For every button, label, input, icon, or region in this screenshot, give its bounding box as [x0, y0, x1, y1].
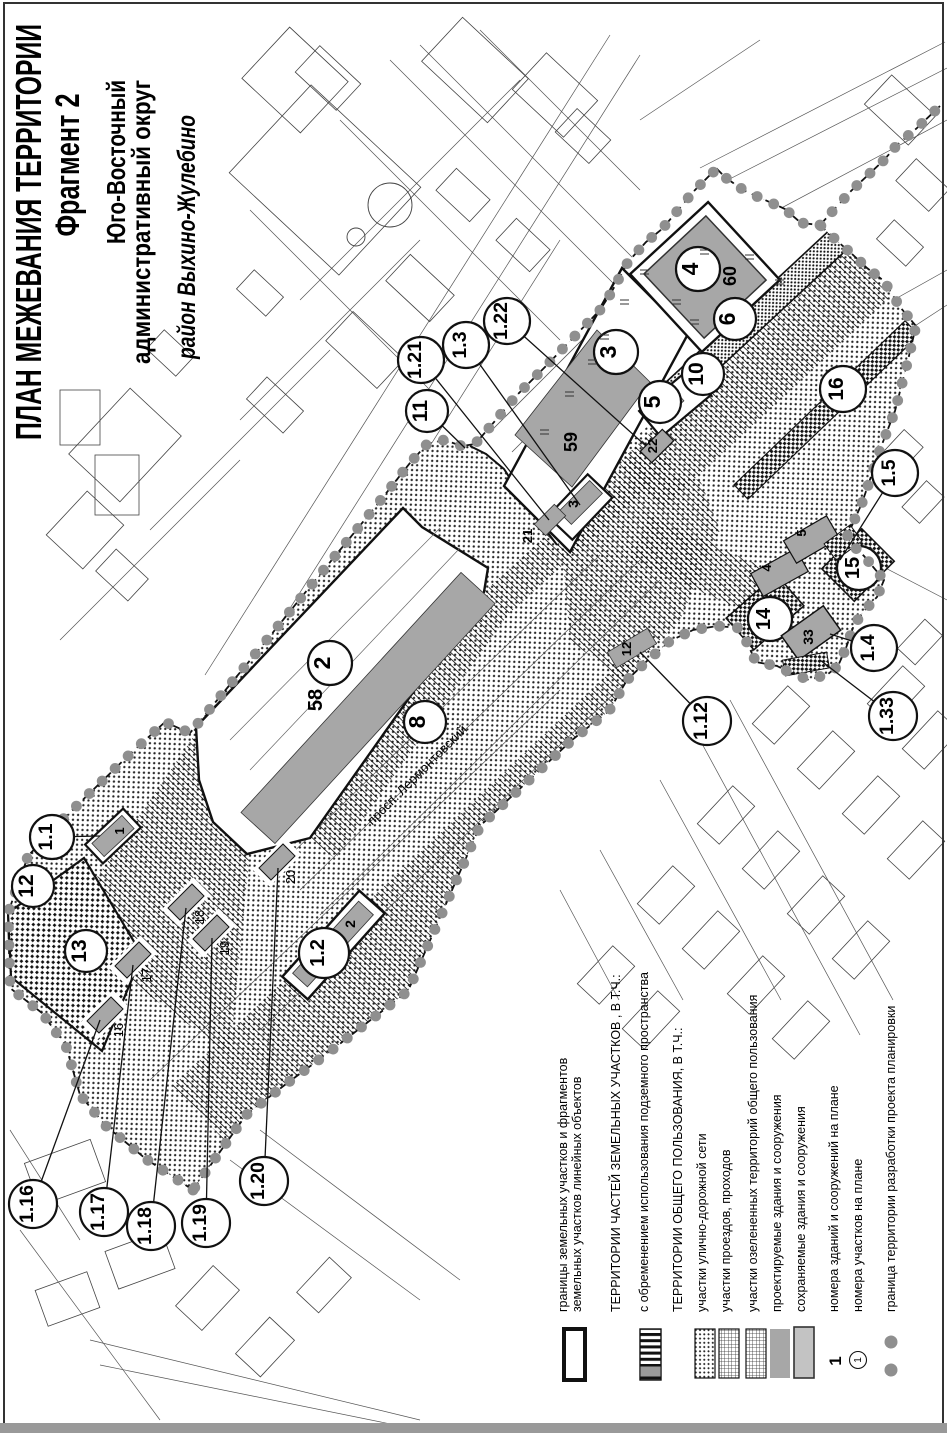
svg-text:4: 4 [677, 262, 703, 275]
svg-text:участки проездов, проходов: участки проездов, проходов [719, 1149, 733, 1312]
svg-text:33: 33 [800, 629, 816, 645]
svg-text:12: 12 [15, 874, 38, 897]
svg-text:4: 4 [759, 564, 774, 572]
svg-text:11: 11 [409, 400, 432, 423]
svg-text:1.33: 1.33 [876, 697, 898, 735]
svg-text:15: 15 [842, 557, 864, 579]
svg-text:номера участков на плане: номера участков на плане [851, 1159, 865, 1312]
svg-text:5: 5 [794, 529, 809, 536]
svg-text:район Выхино-Жулебино: район Выхино-Жулебино [173, 115, 201, 360]
svg-text:1.5: 1.5 [878, 459, 900, 486]
svg-text:10: 10 [685, 362, 708, 385]
svg-text:1.1: 1.1 [35, 823, 57, 850]
svg-text:участки улично-дорожной сети: участки улично-дорожной сети [695, 1133, 709, 1312]
svg-text:1: 1 [826, 1356, 845, 1365]
svg-text:8: 8 [404, 715, 430, 728]
svg-text:59: 59 [561, 432, 581, 452]
svg-text:1: 1 [112, 827, 127, 834]
svg-text:14: 14 [753, 607, 775, 630]
svg-text:1.22: 1.22 [490, 302, 512, 340]
svg-text:2: 2 [309, 657, 335, 670]
svg-text:12: 12 [619, 642, 634, 656]
svg-text:17: 17 [139, 968, 154, 982]
svg-text:сохраняемые здания и сооружени: сохраняемые здания и сооружения [794, 1106, 808, 1312]
svg-text:1.18: 1.18 [134, 1207, 156, 1245]
svg-text:участки озелененных территорий: участки озелененных территорий общего по… [746, 995, 760, 1312]
svg-text:58: 58 [305, 689, 327, 711]
svg-text:16: 16 [825, 377, 848, 400]
svg-text:1: 1 [853, 1357, 864, 1363]
svg-text:1.17: 1.17 [87, 1193, 109, 1231]
svg-text:ТЕРРИТОРИИ ЧАСТЕЙ ЗЕМЕЛЬНЫХ УЧ: ТЕРРИТОРИИ ЧАСТЕЙ ЗЕМЕЛЬНЫХ УЧАСТКОВ , В… [608, 974, 623, 1312]
svg-text:номера зданий и сооружений на: номера зданий и сооружений на плане [827, 1085, 841, 1312]
svg-text:5: 5 [639, 395, 665, 408]
svg-text:1.16: 1.16 [16, 1185, 38, 1223]
svg-text:административный округ: административный округ [126, 80, 156, 364]
svg-text:22: 22 [645, 439, 660, 453]
svg-text:границы земельных участков и ф: границы земельных участков и фрагментов [556, 1057, 570, 1312]
svg-text:1.21: 1.21 [404, 341, 426, 379]
svg-text:1.2: 1.2 [307, 939, 329, 967]
svg-text:21: 21 [520, 529, 535, 543]
svg-text:18: 18 [192, 910, 207, 924]
svg-text:граница территории разработки: граница территории разработки проекта пл… [884, 1006, 898, 1312]
svg-text:с обременением использования п: с обременением использования подземного … [637, 972, 651, 1312]
svg-text:1.12: 1.12 [690, 702, 712, 740]
svg-text:ТЕРРИТОРИИ ОБЩЕГО ПОЛЬЗОВАНИЯ,: ТЕРРИТОРИИ ОБЩЕГО ПОЛЬЗОВАНИЯ, В Т.Ч.: [671, 1028, 685, 1312]
svg-text:проектируемые здания и сооруже: проектируемые здания и сооружения [770, 1094, 784, 1312]
svg-text:16: 16 [111, 1023, 126, 1037]
svg-text:13: 13 [68, 939, 91, 962]
svg-text:ПЛАН МЕЖЕВАНИЯ ТЕРРИТОРИИ: ПЛАН МЕЖЕВАНИЯ ТЕРРИТОРИИ [8, 24, 49, 440]
svg-text:60: 60 [720, 266, 740, 286]
svg-text:земельных участков линейных об: земельных участков линейных объектов [570, 1076, 584, 1312]
svg-text:1.3: 1.3 [449, 331, 471, 358]
svg-text:20: 20 [283, 870, 298, 884]
svg-text:1.20: 1.20 [247, 1162, 269, 1200]
svg-text:19: 19 [217, 941, 232, 955]
svg-text:6: 6 [714, 313, 740, 326]
svg-text:1.4: 1.4 [857, 634, 879, 661]
svg-text:2: 2 [342, 920, 358, 928]
svg-text:3: 3 [595, 346, 621, 359]
svg-text:1.19: 1.19 [189, 1204, 211, 1242]
svg-text:Фрагмент 2: Фрагмент 2 [49, 94, 87, 237]
